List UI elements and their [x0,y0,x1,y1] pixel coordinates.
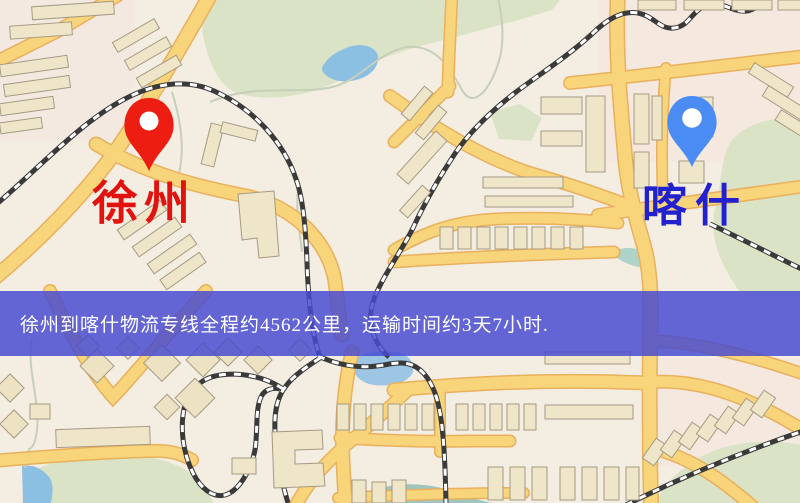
origin-pin-hole [140,112,159,131]
destination-pin-hole [682,108,702,128]
route-banner-text: 徐州到喀什物流专线全程约4562公里，运输时间约3天7小时. [20,310,549,337]
route-banner: 徐州到喀什物流专线全程约4562公里，运输时间约3天7小时. [0,291,800,356]
logistics-route-map: 徐州 喀什 徐州到喀什物流专线全程约4562公里，运输时间约3天7小时. [0,0,800,503]
destination-label: 喀什 [642,180,748,231]
map-canvas: 徐州 喀什 [0,0,800,503]
origin-label: 徐州 [91,178,196,229]
